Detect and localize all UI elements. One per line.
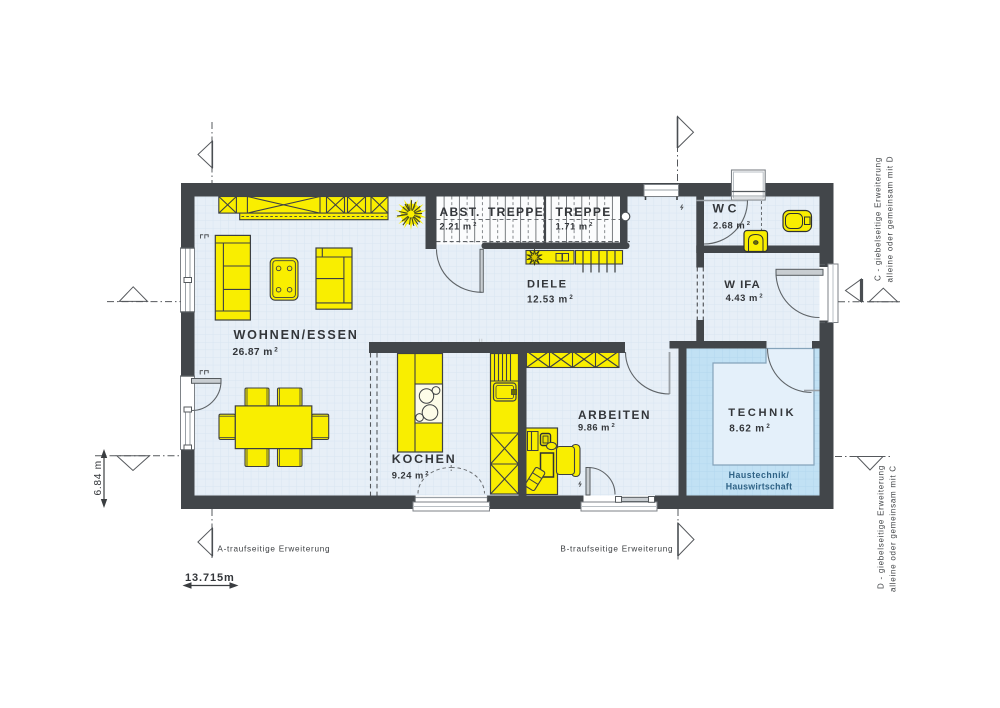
svg-text:alleine oder gemeinsam mit D: alleine oder gemeinsam mit D — [886, 156, 895, 283]
svg-text:TREPPE: TREPPE — [556, 205, 612, 219]
svg-text:6.84 m: 6.84 m — [93, 460, 104, 495]
svg-text:TREPPE: TREPPE — [488, 205, 544, 219]
svg-text:Haustechnik/: Haustechnik/ — [729, 470, 790, 480]
svg-text:C - giebelseitige Erweiterung: C - giebelseitige Erweiterung — [874, 157, 883, 281]
svg-text:2: 2 — [274, 347, 278, 354]
svg-text:26.87 m: 26.87 m — [233, 347, 273, 358]
svg-text:2: 2 — [612, 423, 615, 429]
svg-text:alleine oder gemeinsam mit C: alleine oder gemeinsam mit C — [889, 465, 898, 592]
svg-text:12.53 m: 12.53 m — [527, 295, 568, 306]
svg-text:2: 2 — [425, 471, 428, 477]
svg-text:WOHNEN/ESSEN: WOHNEN/ESSEN — [234, 328, 359, 342]
svg-text:2: 2 — [589, 222, 592, 228]
svg-text:2: 2 — [759, 294, 762, 300]
svg-text:13.715m: 13.715m — [185, 572, 235, 584]
svg-text:D - giebelseitige Erweiterung: D - giebelseitige Erweiterung — [877, 465, 886, 589]
svg-text:4.43 m: 4.43 m — [726, 292, 758, 303]
svg-text:9.86 m: 9.86 m — [578, 423, 610, 433]
svg-text:B-traufseitige Erweiterung: B-traufseitige Erweiterung — [560, 545, 673, 554]
svg-text:A-traufseitige Erweiterung: A-traufseitige Erweiterung — [217, 545, 330, 554]
svg-text:9.24 m: 9.24 m — [392, 470, 424, 480]
svg-text:1.71 m: 1.71 m — [556, 222, 588, 232]
svg-text:W IFA: W IFA — [724, 279, 760, 291]
svg-text:DIELE: DIELE — [527, 279, 568, 291]
svg-text:2: 2 — [747, 221, 750, 227]
svg-text:2.21 m: 2.21 m — [440, 222, 472, 232]
svg-text:TECHNIK: TECHNIK — [728, 407, 796, 419]
svg-text:ABST.: ABST. — [440, 205, 481, 219]
svg-text:W C: W C — [713, 202, 737, 216]
svg-text:Hauswirtschaft: Hauswirtschaft — [726, 482, 793, 492]
svg-text:8.62 m: 8.62 m — [729, 424, 765, 435]
svg-text:KOCHEN: KOCHEN — [392, 452, 457, 466]
svg-text:ARBEITEN: ARBEITEN — [578, 408, 651, 422]
svg-text:2: 2 — [473, 222, 476, 228]
svg-text:2.68 m: 2.68 m — [713, 220, 745, 231]
